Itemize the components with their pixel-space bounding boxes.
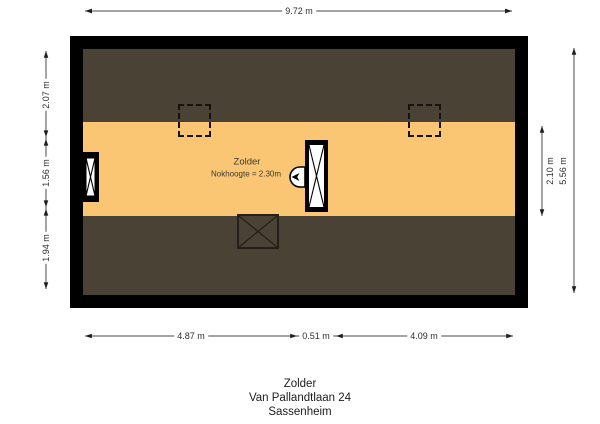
dim-left-bottom-label: 1.94 m: [41, 232, 51, 264]
title-address: Van Pallandtlaan 24: [0, 391, 600, 405]
room-height-label: Nokhoogte = 2.30m: [211, 170, 281, 179]
dimension-right-outer: [572, 48, 577, 293]
dim-bottom-mid-label: 0.51 m: [299, 331, 333, 341]
title-block: Zolder Van Pallandtlaan 24 Sassenheim: [0, 377, 600, 419]
dim-left-mid-label: 1.56 m: [41, 157, 51, 189]
dim-top-label: 9.72 m: [282, 6, 316, 16]
dim-bottom-left-label: 4.87 m: [174, 331, 208, 341]
dim-right-inner-label: 2.10 m: [545, 155, 555, 187]
floorplan-viewport: Zolder Nokhoogte = 2.30m 9.72 m 4.87 m 0…: [0, 0, 600, 424]
plan-overlay: [0, 0, 600, 424]
dimension-right-inner: [540, 126, 545, 216]
ventilation-shaft: [305, 140, 328, 212]
stair-hatch: [238, 215, 278, 248]
dim-right-outer-label: 5.56 m: [558, 155, 568, 187]
hatch-cross-icon: [239, 216, 277, 247]
chimney-left: [83, 152, 99, 202]
dim-left-top-label: 2.07 m: [41, 79, 51, 111]
dim-bottom-right-label: 4.09 m: [407, 331, 441, 341]
room-label: Zolder: [234, 157, 261, 168]
title-city: Sassenheim: [0, 405, 600, 419]
title-room: Zolder: [0, 377, 600, 391]
ventilation-unit: [290, 167, 305, 187]
